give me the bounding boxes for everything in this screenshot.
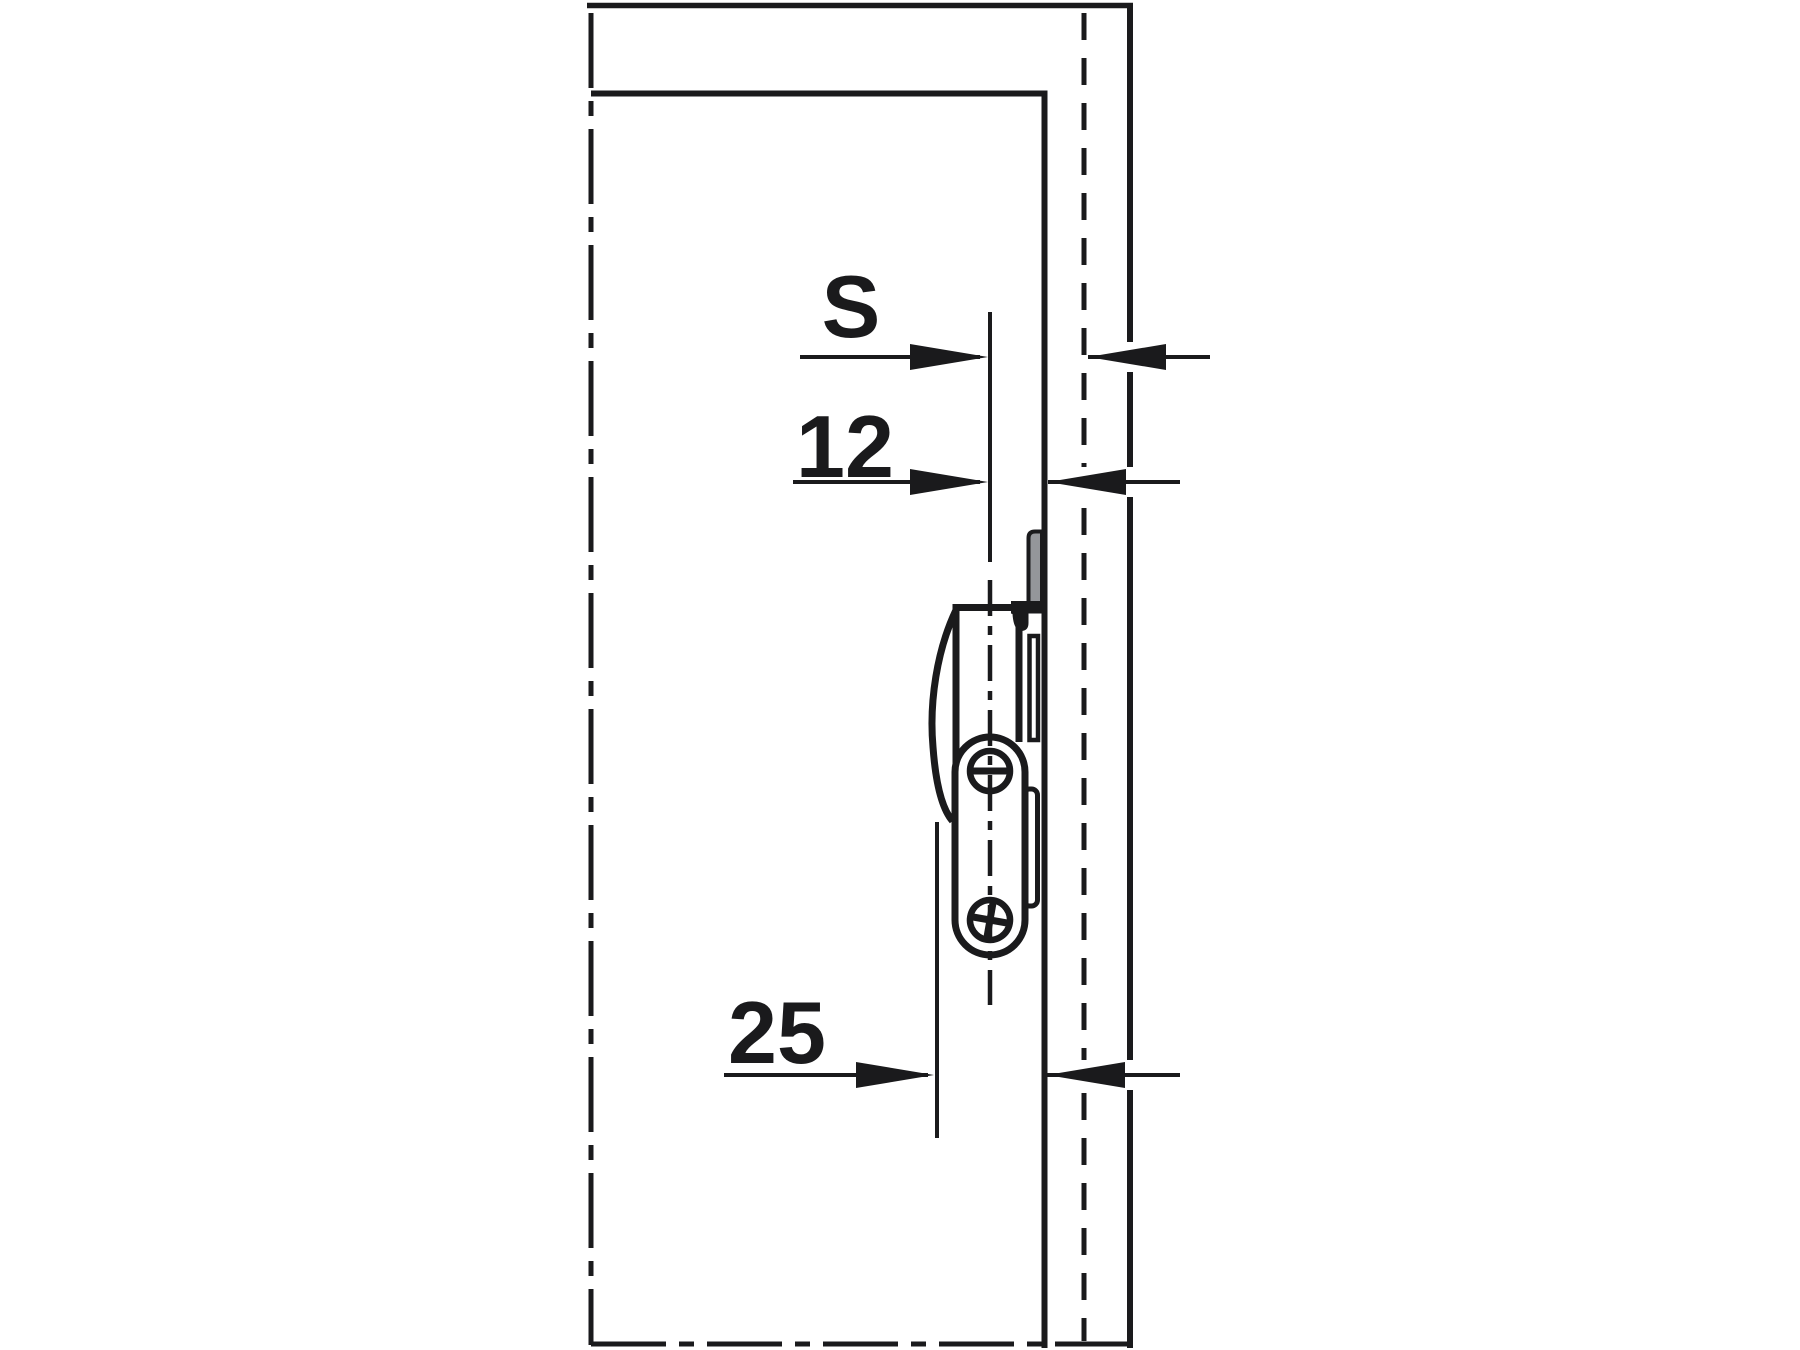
catch-fitting	[932, 532, 1042, 1006]
strike-plate-upper-bar	[1030, 636, 1039, 740]
dimension-12: 12	[793, 397, 1180, 496]
dimension-s-label: S	[822, 257, 881, 356]
dimension-12-arrow-right	[910, 469, 988, 495]
catch-claw	[1011, 601, 1042, 631]
dimension-25: 25	[724, 983, 1180, 1088]
dimension-s-arrow-right	[910, 344, 988, 370]
dimension-25-label: 25	[728, 983, 826, 1082]
technical-drawing: S 12 25	[0, 0, 1800, 1350]
cabinet-structure	[587, 3, 1133, 1348]
strike-plate	[1029, 532, 1043, 607]
dimension-s: S	[800, 257, 1210, 370]
drawing-stage: S 12 25	[0, 0, 1800, 1350]
dimension-25-arrow-right	[856, 1062, 934, 1088]
